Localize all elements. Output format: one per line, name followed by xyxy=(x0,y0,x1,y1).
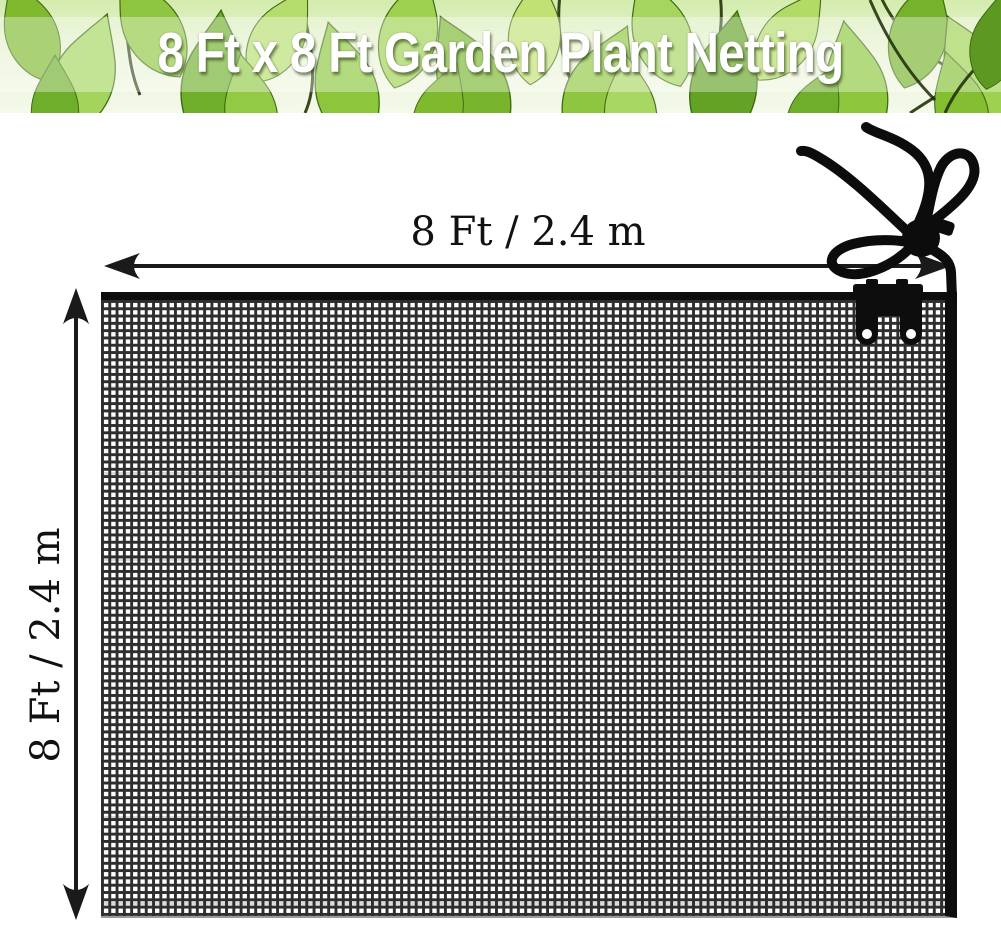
width-dimension-label: 8 Ft / 2.4 m xyxy=(353,209,703,255)
drawstring-cord xyxy=(801,127,975,298)
netting-mesh xyxy=(101,292,957,918)
banner: 8 Ft x 8 Ft Garden Plant Netting xyxy=(0,0,1001,113)
width-dimension-arrow xyxy=(104,253,951,279)
height-dimension-label: 8 Ft / 2.4 m xyxy=(23,527,69,762)
cord-lock-toggle xyxy=(902,217,956,257)
page-title: 8 Ft x 8 Ft Garden Plant Netting xyxy=(0,0,1001,106)
page-title-text: 8 Ft x 8 Ft Garden Plant Netting xyxy=(157,20,843,86)
